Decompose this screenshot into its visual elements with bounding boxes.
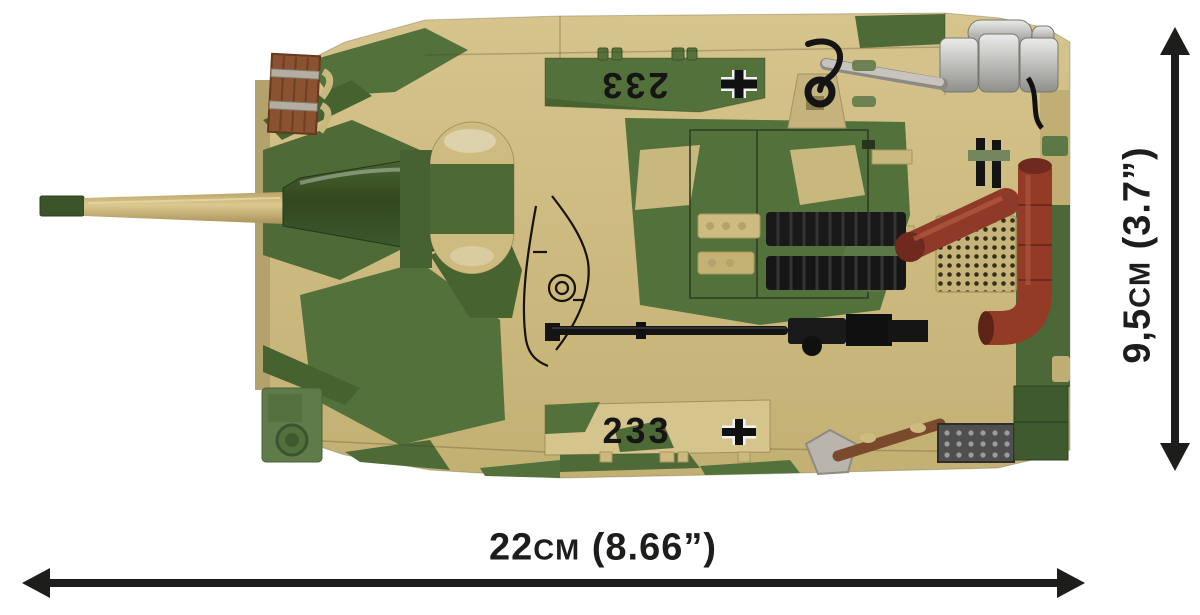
muzzle-brake: [40, 196, 84, 216]
width-value: 22: [489, 527, 533, 569]
height-dimension-label: 9,5cm (3.7”): [1117, 146, 1160, 363]
tank-model: 233 233: [40, 13, 1070, 478]
height-value: 9,5: [1117, 308, 1159, 364]
width-dimension-arrow: [22, 568, 1085, 598]
marking-number-top: 233: [599, 65, 668, 106]
gun-barrel: [84, 192, 285, 224]
height-imperial: (3.7”): [1117, 146, 1159, 249]
tactical-number-top: 233: [599, 65, 668, 106]
height-dimension-arrow: [1160, 27, 1190, 471]
width-unit: cm: [533, 535, 580, 567]
tank-top-view-illustration: 233 233: [0, 0, 1200, 615]
width-dimension-label: 22cm (8.66”): [489, 527, 717, 570]
track-link-plate: [938, 424, 1014, 462]
height-unit: cm: [1125, 261, 1157, 308]
product-dimension-image: 233 233: [0, 0, 1200, 615]
tactical-number-bottom: 233: [602, 410, 671, 451]
marking-number-bottom: 233: [602, 410, 671, 451]
width-imperial: (8.66”): [592, 527, 717, 569]
headlight-bracket: [262, 388, 322, 462]
